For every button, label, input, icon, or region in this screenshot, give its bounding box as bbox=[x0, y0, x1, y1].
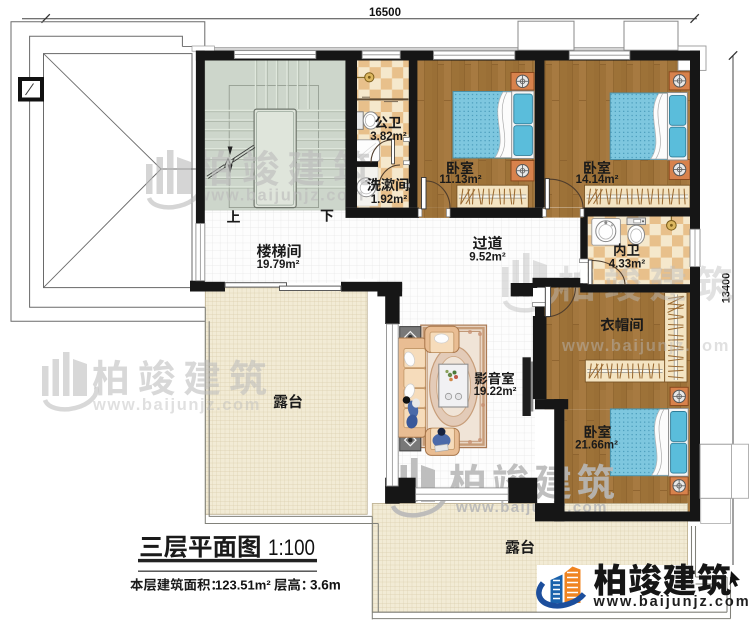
svg-text:19.22m²: 19.22m² bbox=[474, 386, 517, 398]
svg-text:9.52m²: 9.52m² bbox=[469, 252, 506, 264]
svg-text:1.92m²: 1.92m² bbox=[371, 194, 408, 206]
svg-text:www.baijunjz.com: www.baijunjz.com bbox=[593, 594, 750, 610]
svg-text:11.13m²: 11.13m² bbox=[439, 174, 481, 186]
svg-text:14.14m²: 14.14m² bbox=[576, 174, 619, 186]
svg-text:19.79m²: 19.79m² bbox=[257, 259, 300, 271]
svg-text:3.82m²: 3.82m² bbox=[370, 131, 407, 143]
svg-text:www.baijunjz.com: www.baijunjz.com bbox=[196, 187, 365, 205]
svg-text:www.baijunjz.com: www.baijunjz.com bbox=[561, 337, 730, 355]
svg-text:21.66m²: 21.66m² bbox=[575, 440, 618, 452]
svg-text:1:100: 1:100 bbox=[268, 535, 315, 560]
svg-text:123.51m²: 123.51m² bbox=[215, 578, 271, 593]
svg-text:16500: 16500 bbox=[369, 7, 401, 19]
svg-text:4.33m²: 4.33m² bbox=[609, 259, 646, 271]
svg-text:3.6m: 3.6m bbox=[310, 578, 341, 593]
svg-text:www.baijunjz.com: www.baijunjz.com bbox=[92, 396, 261, 414]
